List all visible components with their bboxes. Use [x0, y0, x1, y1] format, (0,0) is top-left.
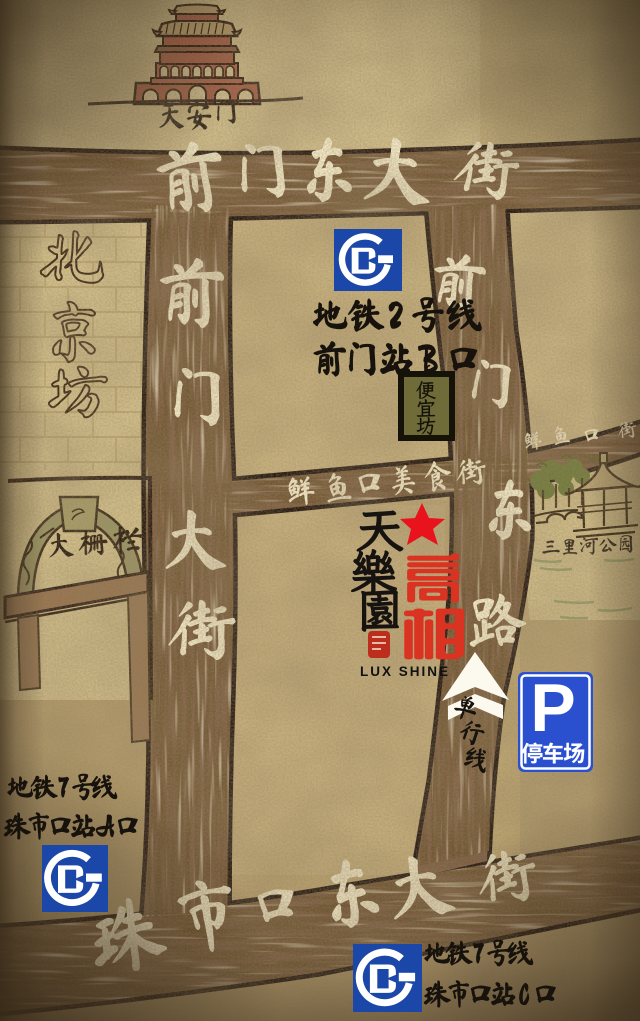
- svg-text:P: P: [530, 670, 575, 746]
- svg-text:LUX SHINE: LUX SHINE: [360, 664, 450, 679]
